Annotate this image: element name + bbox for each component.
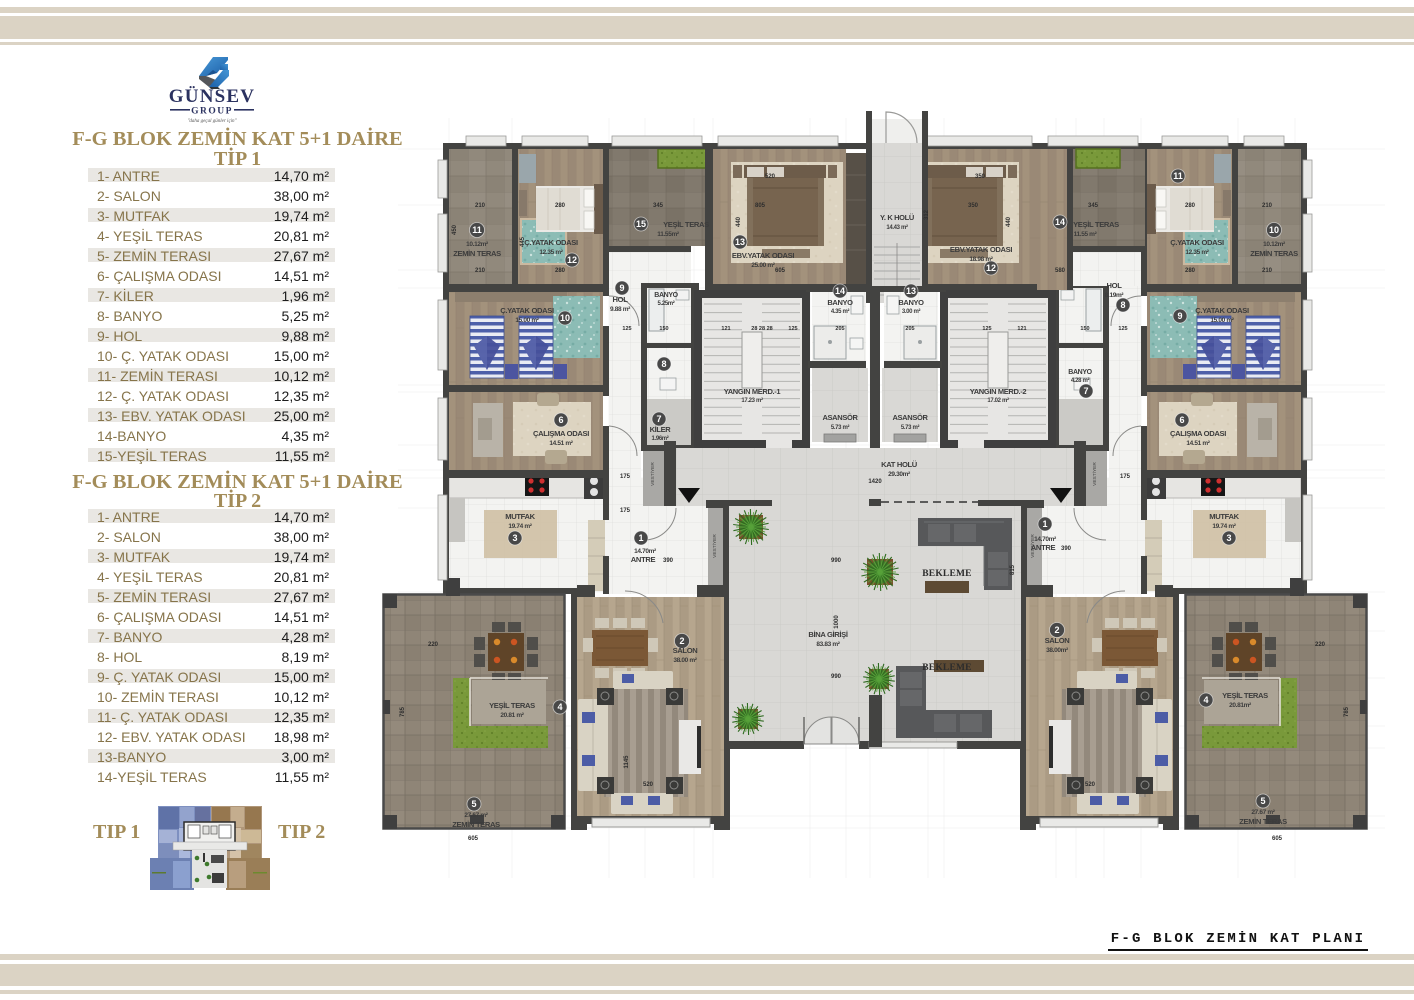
svg-text:BANYO: BANYO: [827, 298, 853, 307]
svg-text:MUTFAK: MUTFAK: [1209, 512, 1239, 521]
svg-text:205: 205: [835, 326, 844, 332]
svg-text:19.74 m²: 19.74 m²: [1212, 523, 1236, 530]
svg-text:3: 3: [512, 533, 517, 543]
svg-text:11: 11: [472, 225, 482, 235]
svg-text:Ç.YATAK ODASI: Ç.YATAK ODASI: [500, 306, 554, 315]
svg-text:605: 605: [468, 836, 479, 842]
svg-text:440: 440: [736, 216, 742, 227]
svg-text:BANYO: BANYO: [1068, 369, 1092, 376]
svg-text:520: 520: [765, 174, 776, 180]
svg-text:125: 125: [622, 326, 631, 332]
svg-text:20.81m²: 20.81m²: [1229, 702, 1252, 709]
svg-text:440: 440: [1006, 216, 1012, 227]
svg-text:1000: 1000: [834, 615, 840, 629]
svg-text:10: 10: [560, 313, 570, 323]
svg-text:BANYO: BANYO: [654, 292, 678, 299]
svg-text:4: 4: [557, 702, 562, 712]
svg-text:14.70m²: 14.70m²: [634, 548, 657, 555]
svg-text:5.25m²: 5.25m²: [658, 300, 675, 307]
svg-text:175: 175: [620, 474, 631, 480]
svg-text:10.12m²: 10.12m²: [466, 241, 489, 248]
svg-text:280: 280: [555, 203, 566, 209]
svg-text:ZEMİN TERAS: ZEMİN TERAS: [1239, 817, 1287, 826]
svg-text:1420: 1420: [868, 479, 882, 485]
svg-text:3.00 m²: 3.00 m²: [902, 308, 921, 315]
svg-text:VESTİYER: VESTİYER: [711, 534, 718, 558]
svg-text:990: 990: [831, 558, 842, 564]
svg-text:14: 14: [1055, 217, 1065, 227]
svg-text:125: 125: [1118, 326, 1127, 332]
svg-text:12: 12: [986, 263, 996, 273]
svg-text:9.88 m²: 9.88 m²: [610, 306, 631, 313]
svg-text:ZEMİN TERAS: ZEMİN TERAS: [453, 249, 501, 258]
svg-text:605: 605: [775, 268, 786, 274]
svg-text:14.43 m²: 14.43 m²: [886, 224, 908, 231]
svg-text:YEŞİL TERAS: YEŞİL TERAS: [1222, 691, 1268, 700]
svg-text:1: 1: [1042, 519, 1047, 529]
svg-text:280: 280: [1185, 268, 1196, 274]
svg-text:121: 121: [721, 326, 730, 332]
svg-text:Ç.YATAK ODASI: Ç.YATAK ODASI: [524, 238, 578, 247]
svg-text:6: 6: [1179, 415, 1184, 425]
svg-text:5: 5: [1260, 796, 1265, 806]
svg-text:ASANSÖR: ASANSÖR: [892, 413, 928, 422]
svg-text:Ç.YATAK ODASI: Ç.YATAK ODASI: [1195, 306, 1249, 315]
svg-text:YEŞİL TERAS: YEŞİL TERAS: [1073, 220, 1119, 229]
svg-text:6: 6: [558, 415, 563, 425]
svg-text:7: 7: [1083, 386, 1088, 396]
svg-text:HOL: HOL: [1107, 281, 1123, 290]
svg-text:785: 785: [400, 706, 406, 717]
svg-text:HOL: HOL: [613, 295, 629, 304]
svg-text:280: 280: [555, 268, 566, 274]
svg-text:VESTİYER: VESTİYER: [649, 462, 656, 486]
svg-text:20.81 m²: 20.81 m²: [500, 712, 524, 719]
svg-text:150: 150: [1080, 326, 1089, 332]
svg-text:Y. K HOLÜ: Y. K HOLÜ: [880, 213, 914, 222]
svg-text:BİNA GİRİŞİ: BİNA GİRİŞİ: [808, 630, 848, 639]
svg-text:14: 14: [835, 286, 845, 296]
svg-text:312: 312: [924, 209, 930, 220]
svg-text:19.74 m²: 19.74 m²: [508, 523, 532, 530]
svg-text:17.02 m²: 17.02 m²: [987, 397, 1009, 404]
svg-text:345: 345: [653, 203, 664, 209]
svg-text:VESTİYER: VESTİYER: [1091, 462, 1098, 486]
svg-text:11.55 m²: 11.55 m²: [1074, 231, 1098, 238]
svg-text:38.00 m²: 38.00 m²: [673, 657, 697, 664]
svg-text:ZEMİN TERAS: ZEMİN TERAS: [1250, 249, 1298, 258]
svg-text:BANYO: BANYO: [898, 298, 924, 307]
svg-text:13: 13: [735, 237, 745, 247]
svg-text:ÇALIŞMA ODASI: ÇALIŞMA ODASI: [1170, 429, 1226, 438]
svg-text:1: 1: [638, 533, 643, 543]
svg-text:YANGIN MERD.-1: YANGIN MERD.-1: [724, 387, 781, 396]
svg-text:125: 125: [982, 326, 991, 332]
svg-text:8: 8: [661, 359, 666, 369]
svg-text:14.51 m²: 14.51 m²: [549, 440, 573, 447]
svg-text:9: 9: [619, 283, 624, 293]
svg-text:175: 175: [1120, 474, 1131, 480]
svg-text:ASANSÖR: ASANSÖR: [822, 413, 858, 422]
svg-text:805: 805: [755, 203, 766, 209]
svg-text:5.73 m²: 5.73 m²: [901, 424, 920, 431]
svg-text:7: 7: [656, 414, 661, 424]
svg-text:11.55m²: 11.55m²: [657, 231, 680, 238]
svg-text:10: 10: [1269, 225, 1279, 235]
svg-text:1.96m²: 1.96m²: [652, 435, 669, 442]
svg-text:BEKLEME: BEKLEME: [922, 663, 971, 673]
svg-text:17.23 m²: 17.23 m²: [741, 397, 763, 404]
svg-text:ANTRE: ANTRE: [631, 555, 656, 564]
svg-text:15.00 m²: 15.00 m²: [515, 317, 539, 324]
svg-text:Ç.YATAK ODASI: Ç.YATAK ODASI: [1170, 238, 1224, 247]
svg-text:SALON: SALON: [1045, 636, 1070, 645]
svg-text:580: 580: [1055, 268, 1066, 274]
svg-text:5.73 m²: 5.73 m²: [831, 424, 850, 431]
svg-text:VESTİYER: VESTİYER: [1029, 534, 1036, 558]
svg-text:ZEMİN TERAS: ZEMİN TERAS: [452, 820, 500, 829]
svg-text:220: 220: [1315, 642, 1326, 648]
svg-text:520: 520: [1085, 782, 1096, 788]
svg-text:210: 210: [1262, 268, 1273, 274]
svg-text:150: 150: [659, 326, 668, 332]
svg-text:27.67 m²: 27.67 m²: [1251, 809, 1275, 816]
svg-text:YEŞİL TERAS: YEŞİL TERAS: [663, 220, 709, 229]
svg-text:121: 121: [1017, 326, 1026, 332]
svg-text:KİLER: KİLER: [650, 425, 672, 434]
svg-text:13: 13: [906, 286, 916, 296]
svg-text:3: 3: [1226, 533, 1231, 543]
svg-text:28 28 28: 28 28 28: [751, 326, 772, 332]
svg-text:785: 785: [1344, 706, 1350, 717]
svg-text:4.28 m²: 4.28 m²: [1071, 377, 1090, 384]
svg-text:14.70m²: 14.70m²: [1034, 536, 1057, 543]
svg-text:12.35 m²: 12.35 m²: [1185, 249, 1209, 256]
svg-text:25.00 m²: 25.00 m²: [751, 262, 775, 269]
svg-text:9: 9: [1177, 311, 1182, 321]
svg-text:5: 5: [471, 799, 476, 809]
svg-text:350: 350: [968, 203, 979, 209]
svg-text:280: 280: [1185, 203, 1196, 209]
svg-text:14.51 m²: 14.51 m²: [1186, 440, 1210, 447]
svg-text:520: 520: [643, 782, 654, 788]
svg-text:2: 2: [1054, 625, 1059, 635]
svg-text:SALON: SALON: [673, 646, 698, 655]
svg-text:8: 8: [1120, 300, 1125, 310]
svg-text:83.83 m²: 83.83 m²: [816, 641, 840, 648]
svg-text:12.35 m²: 12.35 m²: [539, 249, 563, 256]
svg-text:605: 605: [1272, 836, 1283, 842]
svg-text:210: 210: [475, 268, 486, 274]
svg-text:390: 390: [663, 558, 674, 564]
svg-text:2: 2: [679, 636, 684, 646]
svg-text:12: 12: [567, 255, 577, 265]
svg-text:450: 450: [452, 224, 458, 235]
svg-text:EBV.YATAK ODASI: EBV.YATAK ODASI: [732, 251, 795, 260]
svg-text:15.00 m²: 15.00 m²: [1210, 317, 1234, 324]
svg-text:ÇALIŞMA ODASI: ÇALIŞMA ODASI: [533, 429, 589, 438]
svg-text:4: 4: [1203, 695, 1208, 705]
svg-text:210: 210: [475, 203, 486, 209]
svg-text:YEŞİL TERAS: YEŞİL TERAS: [489, 701, 535, 710]
svg-text:210: 210: [1262, 203, 1273, 209]
svg-text:10.12m²: 10.12m²: [1263, 241, 1286, 248]
svg-text:205: 205: [905, 326, 914, 332]
svg-text:15: 15: [636, 219, 646, 229]
svg-text:445: 445: [520, 236, 526, 247]
svg-text:125: 125: [788, 326, 797, 332]
svg-text:350: 350: [975, 174, 986, 180]
svg-text:4.35 m²: 4.35 m²: [831, 308, 850, 315]
svg-text:11: 11: [1173, 171, 1183, 181]
svg-text:345: 345: [1088, 203, 1099, 209]
svg-text:390: 390: [1061, 546, 1072, 552]
svg-text:YANGIN MERD.-2: YANGIN MERD.-2: [970, 387, 1027, 396]
svg-text:MUTFAK: MUTFAK: [505, 512, 535, 521]
svg-text:KAT HOLÜ: KAT HOLÜ: [881, 460, 918, 469]
svg-text:990: 990: [831, 674, 842, 680]
svg-text:1145: 1145: [624, 755, 630, 769]
svg-text:220: 220: [428, 642, 439, 648]
svg-text:175: 175: [620, 508, 631, 514]
svg-text:29.30m²: 29.30m²: [888, 471, 911, 478]
svg-text:815: 815: [1010, 564, 1016, 575]
svg-text:27.67 m²: 27.67 m²: [464, 812, 488, 819]
svg-text:EBV.YATAK ODASI: EBV.YATAK ODASI: [950, 245, 1013, 254]
svg-text:38.00m²: 38.00m²: [1046, 647, 1069, 654]
svg-text:BEKLEME: BEKLEME: [922, 569, 971, 579]
